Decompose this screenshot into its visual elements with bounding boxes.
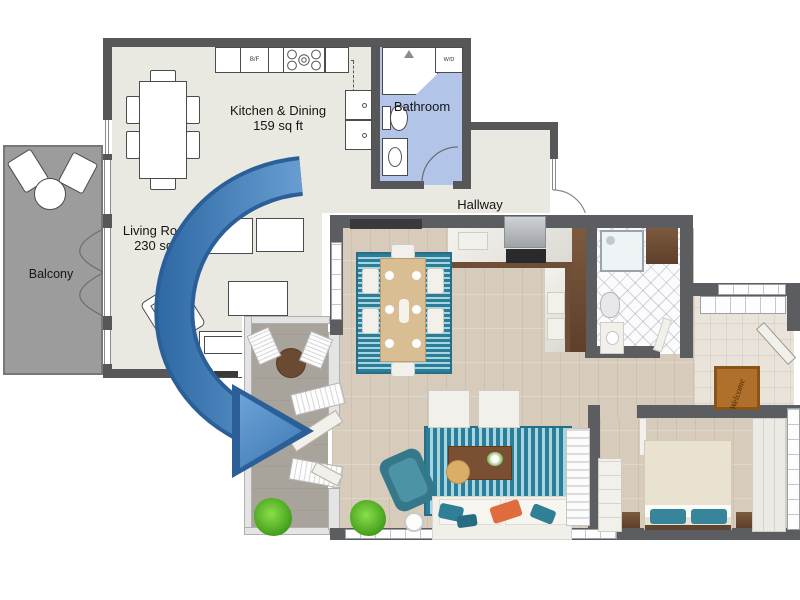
floorplan-illustration: Balcony B/F bbox=[0, 0, 800, 600]
transform-arrow bbox=[0, 0, 800, 600]
